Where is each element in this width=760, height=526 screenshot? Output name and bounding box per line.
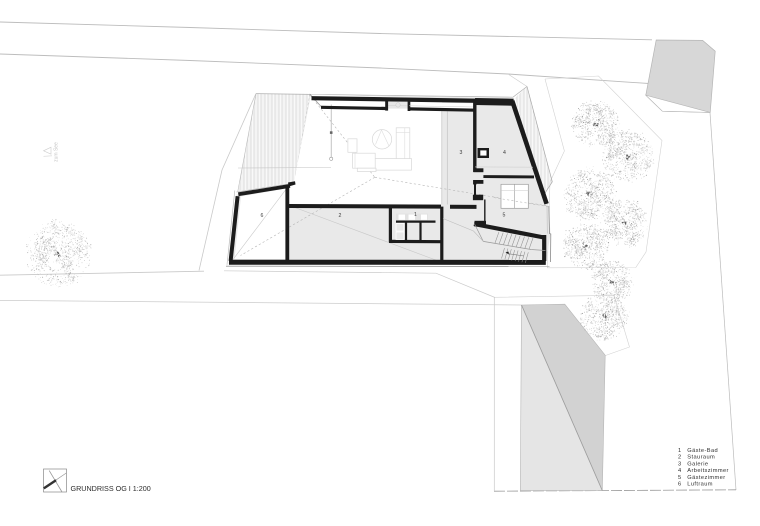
- svg-text:1: 1: [414, 212, 417, 218]
- svg-text:6: 6: [678, 482, 682, 488]
- svg-text:2: 2: [678, 455, 682, 461]
- svg-text:Galerie: Galerie: [687, 461, 708, 467]
- svg-text:zum See: zum See: [54, 142, 60, 162]
- svg-text:4: 4: [678, 468, 682, 474]
- svg-text:3: 3: [678, 461, 682, 467]
- svg-text:Gäste-Bad: Gäste-Bad: [687, 448, 718, 454]
- svg-text:5: 5: [678, 475, 682, 481]
- svg-text:4: 4: [503, 150, 506, 156]
- svg-text:Luftraum: Luftraum: [687, 482, 713, 488]
- svg-text:5: 5: [503, 213, 506, 219]
- svg-text:1: 1: [678, 448, 682, 454]
- svg-text:2: 2: [339, 213, 342, 219]
- svg-text:Gästezimmer: Gästezimmer: [687, 475, 725, 481]
- svg-text:Arbeitszimmer: Arbeitszimmer: [687, 468, 729, 474]
- svg-text:GRUNDRISS OG I 1:200: GRUNDRISS OG I 1:200: [71, 484, 151, 493]
- svg-text:6: 6: [261, 213, 264, 219]
- svg-text:Stauraum: Stauraum: [687, 455, 715, 461]
- svg-text:3: 3: [460, 150, 463, 156]
